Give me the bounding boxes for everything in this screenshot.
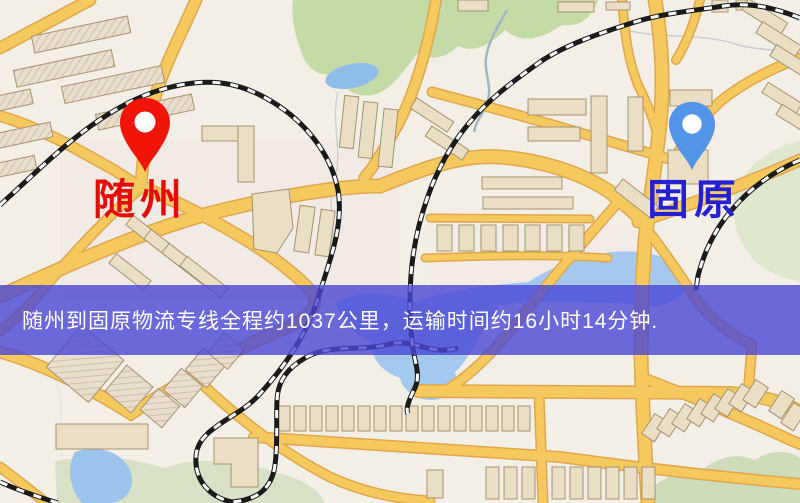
origin-pin-icon[interactable] (119, 97, 171, 173)
destination-pin-icon[interactable] (668, 100, 716, 172)
map-image (0, 0, 800, 503)
route-info-text: 随州到固原物流专线全程约1037公里，运输时间约16小时14分钟. (0, 305, 658, 335)
origin-pin-shape (120, 98, 170, 172)
destination-pin-shape (669, 102, 715, 170)
map-screenshot: 随州 固原 随州到固原物流专线全程约1037公里，运输时间约16小时14分钟. (0, 0, 800, 503)
origin-city-label: 随州 (93, 180, 187, 222)
route-info-banner: 随州到固原物流专线全程约1037公里，运输时间约16小时14分钟. (0, 285, 800, 355)
destination-city-label: 固原 (647, 180, 741, 222)
